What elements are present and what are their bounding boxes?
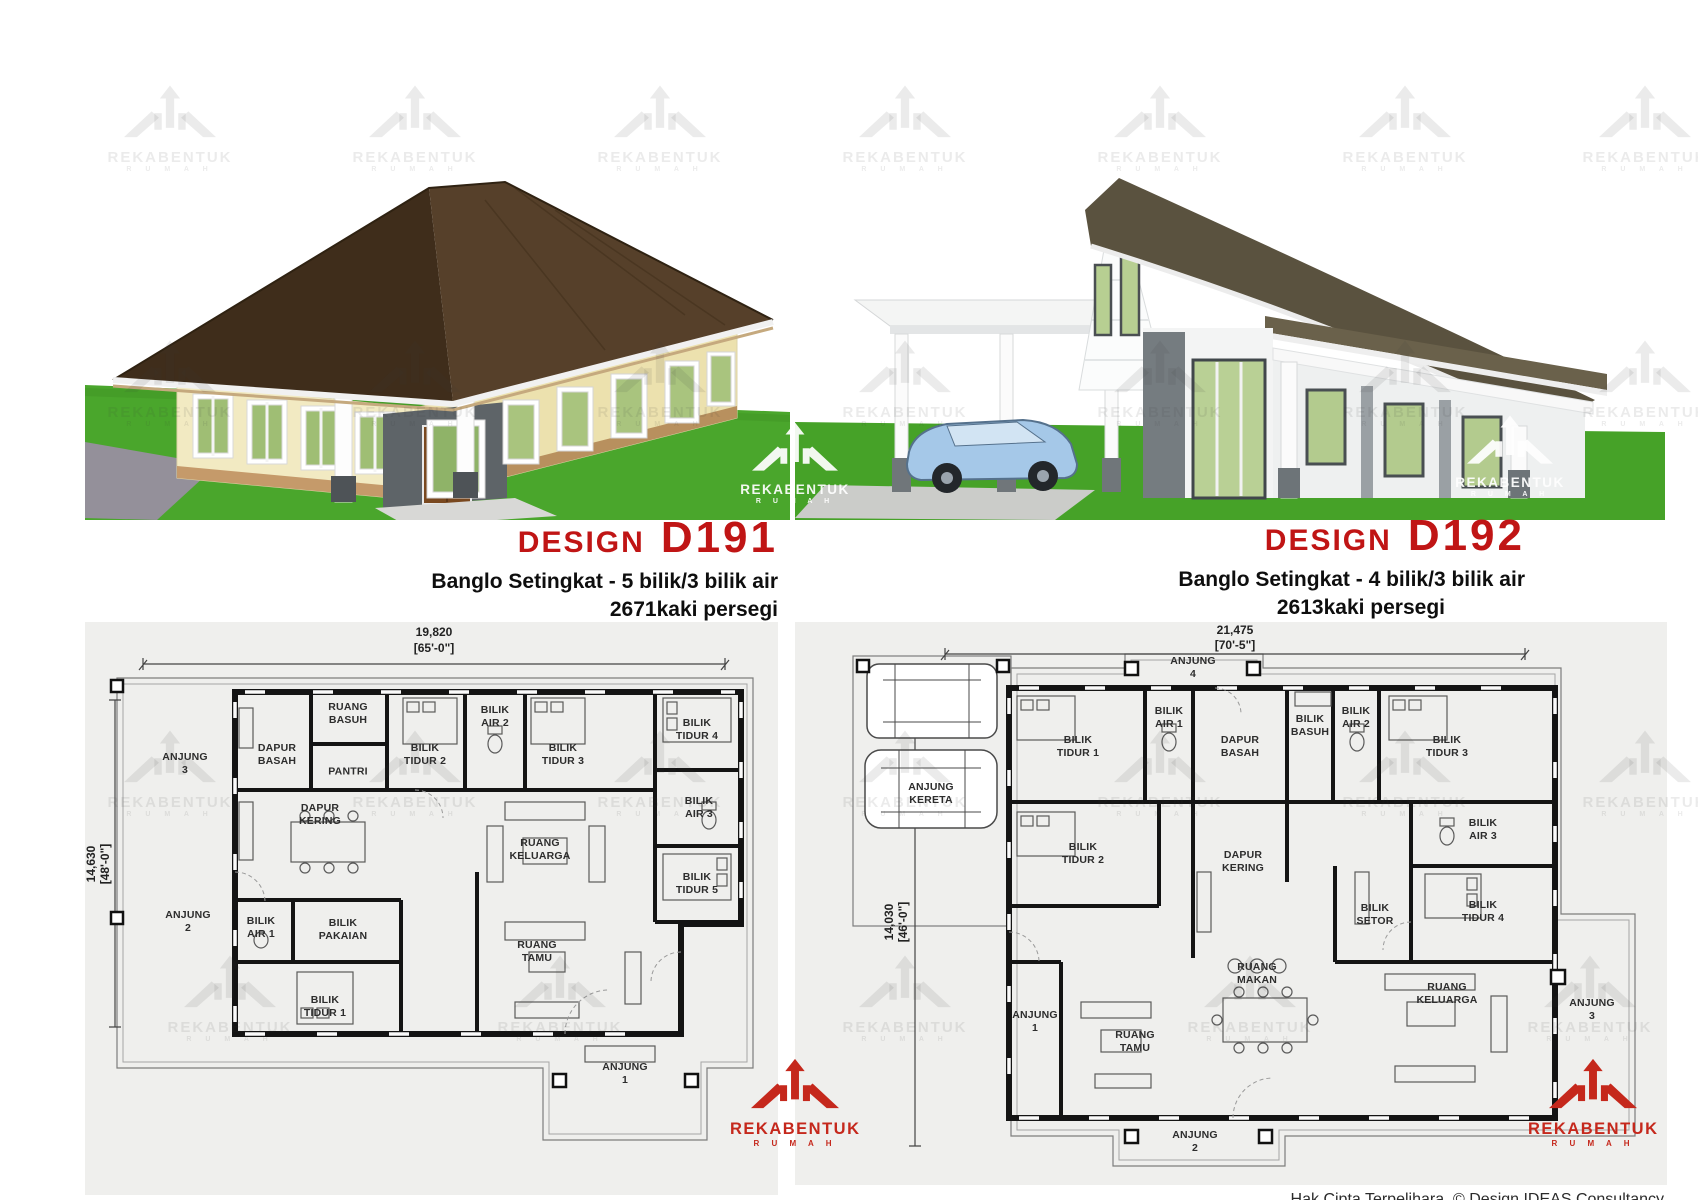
svg-text:14,630: 14,630 (85, 845, 98, 882)
render-house-d191 (85, 70, 790, 520)
floorplan-d191: 19,820 [65'-0"] 14,630 [48'-0"] (85, 622, 778, 1195)
design-subtitle: Banglo Setingkat - 5 bilik/3 bilik air (85, 568, 778, 596)
title-block-d191: DESIGND191 Banglo Setingkat - 5 bilik/3 … (85, 518, 778, 624)
floorplan-d192-drawing: 21,475 [70'-5"] 14,030 [46'-0"] (795, 622, 1667, 1185)
svg-text:[48'-0"]: [48'-0"] (98, 844, 112, 885)
design-brochure-page: DESIGND191 Banglo Setingkat - 5 bilik/3 … (0, 0, 1698, 1200)
design-subtitle: Banglo Setingkat - 4 bilik/3 bilik air (795, 566, 1525, 594)
floorplan-d192: 21,475 [70'-5"] 14,030 [46'-0"] (795, 622, 1667, 1185)
design-title-d191: DESIGND191 (85, 518, 778, 568)
design-title-d192: DESIGND192 (795, 516, 1525, 566)
svg-text:[70'-5"]: [70'-5"] (1215, 638, 1256, 652)
panel-d192: DESIGND192 Banglo Setingkat - 4 bilik/3 … (790, 0, 1698, 1200)
copyright-line1: Hak Cipta Terpelihara © Design IDEAS Con… (1291, 1188, 1664, 1200)
svg-text:21,475: 21,475 (1217, 623, 1254, 637)
floorplan-d191-drawing: 19,820 [65'-0"] 14,630 [48'-0"] (85, 622, 778, 1195)
copyright-notice: Hak Cipta Terpelihara © Design IDEAS Con… (1291, 1140, 1664, 1200)
svg-text:[65'-0"]: [65'-0"] (414, 641, 455, 655)
svg-text:14,030: 14,030 (882, 903, 896, 940)
design-area: 2671kaki persegi (85, 596, 778, 624)
design-word: DESIGN (518, 526, 645, 559)
design-area: 2613kaki persegi (795, 594, 1525, 622)
design-word: DESIGN (1265, 524, 1392, 557)
design-code: D192 (1408, 511, 1525, 560)
render-house-d192 (795, 60, 1665, 520)
panel-d191: DESIGND191 Banglo Setingkat - 5 bilik/3 … (0, 0, 790, 1200)
svg-text:[46'-0"]: [46'-0"] (896, 902, 910, 943)
svg-text:19,820: 19,820 (416, 625, 453, 639)
title-block-d192: DESIGND192 Banglo Setingkat - 4 bilik/3 … (795, 516, 1525, 622)
design-code: D191 (661, 513, 778, 562)
